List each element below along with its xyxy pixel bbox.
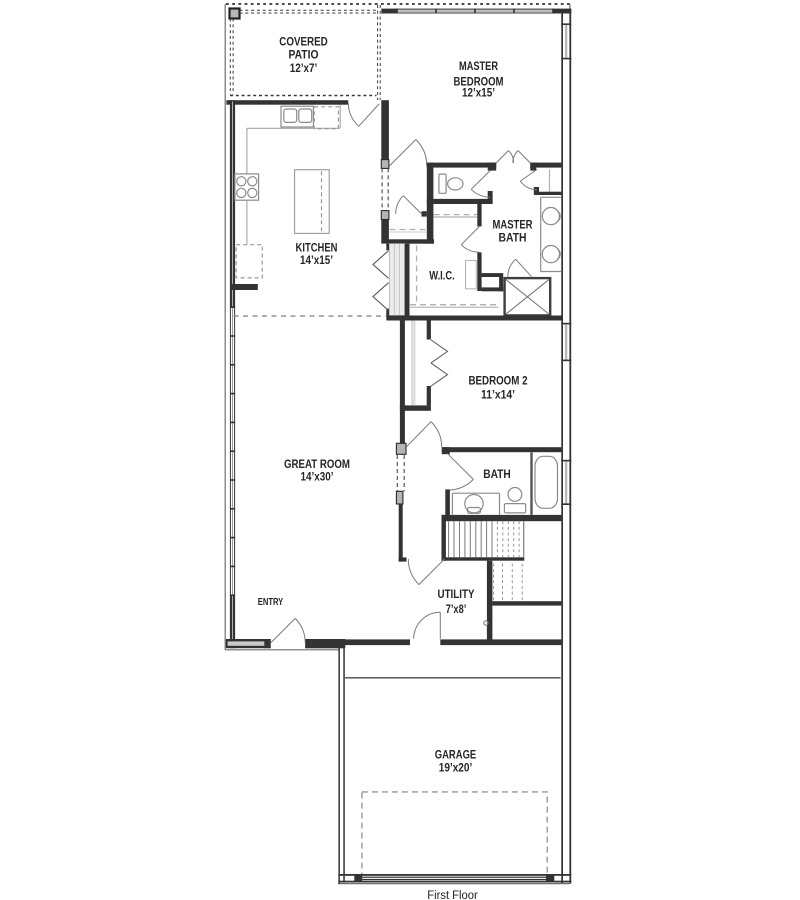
svg-text:KITCHEN: KITCHEN xyxy=(296,243,338,255)
svg-text:12’x7’: 12’x7’ xyxy=(290,63,318,75)
svg-text:BATH: BATH xyxy=(483,469,511,481)
svg-text:7’x8’: 7’x8’ xyxy=(446,604,467,616)
svg-text:BATH: BATH xyxy=(499,232,527,244)
svg-text:PATIO: PATIO xyxy=(289,50,319,62)
svg-text:ENTRY: ENTRY xyxy=(258,596,284,608)
svg-text:11’x14’: 11’x14’ xyxy=(481,390,515,402)
svg-text:12’x15’: 12’x15’ xyxy=(462,87,495,99)
svg-text:First Floor: First Floor xyxy=(427,890,478,900)
svg-text:GARAGE: GARAGE xyxy=(435,749,477,761)
svg-text:MASTER: MASTER xyxy=(459,61,499,73)
svg-text:W.I.C.: W.I.C. xyxy=(429,270,455,282)
svg-text:UTILITY: UTILITY xyxy=(438,589,475,601)
svg-text:14’x15’: 14’x15’ xyxy=(300,255,333,267)
svg-text:19’x20’: 19’x20’ xyxy=(439,762,473,774)
svg-text:MASTER: MASTER xyxy=(493,219,534,231)
svg-text:COVERED: COVERED xyxy=(279,36,328,48)
svg-text:GREAT ROOM: GREAT ROOM xyxy=(284,459,350,471)
svg-text:BEDROOM 2: BEDROOM 2 xyxy=(469,376,528,388)
svg-text:14’x30’: 14’x30’ xyxy=(301,471,334,483)
